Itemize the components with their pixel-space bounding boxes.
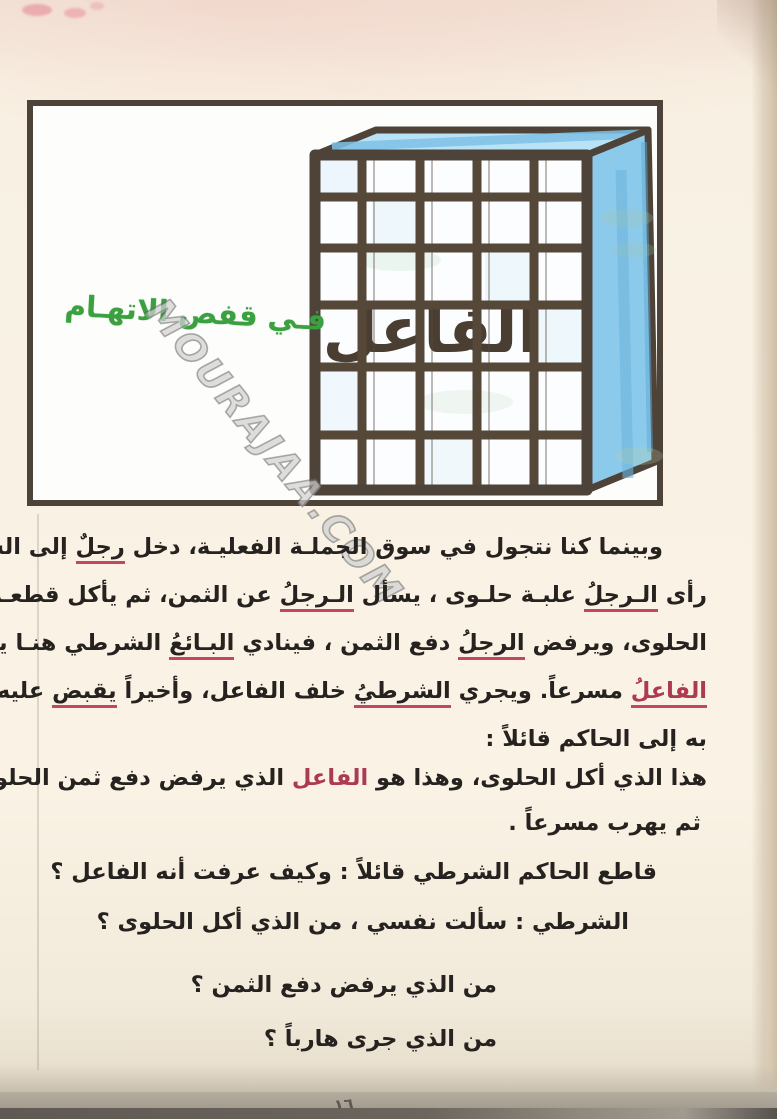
text-segment: عليه ويذهب [0,678,52,704]
dialogue-line-question-3: من الذي جرى هارباً ؟ [264,1024,497,1054]
text-segment: عن الثمن، ثم يأكل قطعـة من [0,582,280,608]
highlighted-word: البـائعُ [169,630,234,660]
bottom-shadow-band [0,1108,777,1119]
dialogue-line-question-2: من الذي يرفض دفع الثمن ؟ [191,970,497,1000]
text-segment: مسرعاً. ويجري [451,678,631,704]
bleed-through-smudge [601,209,653,227]
text-segment: دفع الثمن ، فينادي [234,630,458,656]
story-paragraph-1: وبينما كنا نتجول في سوق الجملـة الفعليـة… [15,524,707,764]
highlighted-word: الـرجلُ [280,582,354,612]
story-line: وبينما كنا نتجول في سوق الجملـة الفعليـة… [15,524,707,572]
highlighted-word: يقبض [52,678,117,708]
text-segment: علبـة حلـوى ، يسأل [354,582,584,608]
highlighted-word: الـرجلُ [584,582,658,612]
story-line: الفاعلُ مسرعاً. ويجري الشرطيُ خلف الفاعل… [15,668,707,716]
story-line: رأى الـرجلُ علبـة حلـوى ، يسأل الـرجلُ ع… [15,572,707,620]
text-segment: هذا الذي أكل الحلوى، وهذا هو [368,765,707,791]
text-segment: ثم يهرب مسرعاً . [508,810,701,836]
highlighted-word: الشرطيُ [354,678,451,708]
text-segment: به إلى الحاكم قائلاً : [485,726,707,752]
page-edge-right [751,0,777,1119]
story-paragraph-2: هذا الذي أكل الحلوى، وهذا هو الفاعل الذي… [15,757,707,847]
highlighted-word: الفاعل [292,765,368,791]
text-segment: الحلوى، ويرفض [525,630,707,656]
story-line: هذا الذي أكل الحلوى، وهذا هو الفاعل الذي… [15,757,707,802]
story-line: ثم يهرب مسرعاً . [15,802,707,847]
bottom-shadow-band [0,1092,777,1108]
cage-cell-tint [319,370,361,432]
scan-ink-mark [22,4,52,16]
text-segment: وبينما كنا نتجول في سوق الجملـة الفعليـة… [125,534,663,560]
dialogue-line-judge: قاطع الحاكم الشرطي قائلاً : وكيف عرفت أن… [50,857,657,887]
story-line: الحلوى، ويرفض الرجلُ دفع الثمن ، فينادي … [15,620,707,668]
highlighted-word: الرجلُ [458,630,524,660]
text-segment: الذي يرفض دفع ثمن الحلوى [0,765,292,791]
text-segment: خلف الفاعل، وأخيراً [117,678,354,704]
scanned-book-page: { "page": { "number": "١٦" }, "colors": … [0,0,777,1119]
text-segment: إلى السـوق، [0,534,76,560]
bleed-through-smudge [612,242,656,258]
highlighted-word: الفاعلُ [631,678,707,708]
highlighted-word: رجلٌ [76,534,125,564]
cage-cell-tint [372,200,418,246]
page-corner-shadow [717,0,777,95]
scan-ink-mark [64,8,86,18]
scan-ink-mark [90,2,104,10]
text-segment: الشرطي هنـا يـهرب [0,630,169,656]
cage-cell-tint [423,440,475,488]
bleed-through-smudge [615,447,663,465]
text-segment: رأى [658,582,707,608]
dialogue-line-policeman: الشرطي : سألت نفسي ، من الذي أكل الحلوى … [97,907,629,937]
bottom-shadow-band [0,1064,777,1092]
